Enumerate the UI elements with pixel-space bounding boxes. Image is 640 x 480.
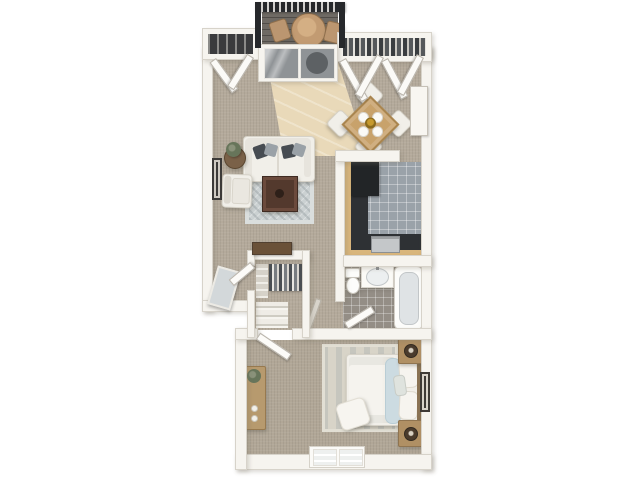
- bedroom-wall-art: [420, 372, 430, 412]
- dresser-plant: [247, 369, 261, 383]
- balcony-railing-right: [339, 2, 345, 48]
- dresser-decor-1: [251, 405, 258, 412]
- armchair: [221, 173, 252, 208]
- glass-reflection: [306, 52, 328, 74]
- living-wall-art: [212, 158, 222, 200]
- dresser-decor-2: [251, 415, 258, 422]
- closet-shelf: [256, 264, 268, 298]
- balcony-railing-top: [255, 2, 345, 12]
- sofa-seat-divider: [277, 147, 279, 177]
- sliding-door-frame: [258, 44, 338, 82]
- utility-closet-panel: [410, 86, 428, 136]
- wall-bedroom-top-b: [292, 328, 432, 340]
- coat-closet-interior: [208, 34, 253, 54]
- console-table: [252, 242, 292, 255]
- closet-shoe-rack: [256, 302, 288, 328]
- lamp: [404, 344, 418, 358]
- balcony-railing-left: [255, 2, 261, 48]
- armchair-cushion: [232, 178, 251, 205]
- sink-vanity: [361, 265, 394, 288]
- refrigerator: [351, 162, 379, 196]
- stove: [371, 236, 400, 253]
- sofa-arm-left: [245, 139, 252, 177]
- wall-closet-right: [302, 250, 310, 338]
- sliding-door-glass-right: [300, 48, 335, 79]
- wall-bedroom-left: [235, 328, 247, 470]
- window-pane-left: [313, 449, 337, 466]
- wall-kitchen-bath-left: [335, 150, 345, 302]
- sliding-door-glass-left: [264, 48, 299, 79]
- bistro-table: [291, 13, 326, 48]
- coffee-table-decor: [275, 189, 284, 198]
- sink-basin: [366, 268, 389, 286]
- potted-plant: [226, 142, 241, 157]
- closet-hanging-clothes: [269, 264, 302, 291]
- toilet-bowl: [346, 277, 360, 294]
- bathtub-basin: [399, 272, 419, 325]
- coffee-table: [262, 176, 298, 212]
- floorplan-render: [0, 0, 640, 480]
- wall-kitchen-bath-divider: [343, 255, 432, 267]
- bedroom-window: [309, 446, 365, 468]
- hall-closet-interior: [343, 38, 426, 56]
- lamp: [404, 427, 418, 441]
- window-pane-right: [339, 449, 363, 466]
- bathtub: [394, 266, 423, 330]
- armchair-back: [224, 176, 232, 204]
- wall-closet-left-b: [247, 290, 255, 338]
- wall-kitchen-half: [335, 150, 400, 162]
